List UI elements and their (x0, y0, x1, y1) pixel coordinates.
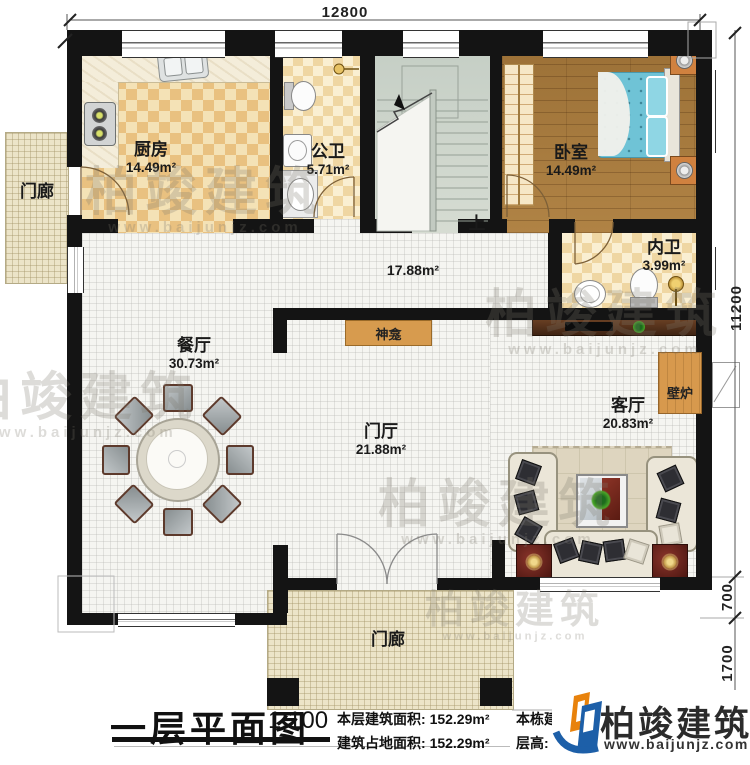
stairs-up-label: 上 (469, 214, 486, 234)
brand-website: www.baijunjz.com (604, 736, 749, 752)
wall (270, 56, 283, 219)
wall (548, 233, 562, 308)
room-label-living: 客厅 20.83m² (603, 396, 653, 431)
wall (67, 293, 82, 613)
shower-sprayer-icon (668, 276, 684, 292)
wall (660, 577, 712, 590)
bath-sink-basin (287, 178, 314, 211)
shrine: 神龛 (345, 320, 432, 346)
window (67, 247, 84, 293)
porch-left-floor (5, 132, 69, 284)
bath-sink-counter (282, 170, 318, 218)
dining-chair (102, 445, 130, 475)
wall (273, 320, 287, 353)
dim-1700: 1700 (719, 631, 735, 695)
room-label-dining: 餐厅 30.73m² (169, 336, 219, 371)
wall (696, 30, 712, 577)
room-label-hall-area: 17.88m² (387, 262, 439, 278)
stat-footprint: 建筑占地面积: 152.29m² (337, 733, 490, 753)
coffee-table (576, 474, 628, 528)
wall (490, 30, 502, 219)
inner-bath-sink-inner (580, 285, 600, 303)
shrine-label: 神龛 (375, 324, 401, 343)
dining-chair (163, 384, 193, 412)
plant (591, 490, 611, 510)
fireplace: 壁炉 (658, 352, 702, 414)
fireplace-niche (712, 362, 740, 408)
room-label-inner-bath: 内卫 3.99m² (643, 238, 686, 273)
side-table-left (516, 544, 552, 580)
burner-2 (92, 126, 107, 141)
toilet-public-bowl (291, 81, 316, 111)
brand-logo: 柏竣建筑 www.baijunjz.com (552, 690, 750, 762)
dining-chair (226, 445, 254, 475)
porch-bottom-floor (267, 590, 514, 710)
nightstand-bottom (670, 156, 699, 185)
side-table-right (652, 544, 688, 580)
toilet-inner-base (630, 297, 658, 308)
scale-label: 1:100 (268, 707, 328, 735)
wall (288, 578, 337, 590)
room-label-foyer: 门厅 21.88m² (356, 422, 406, 457)
sofa-pillow (515, 459, 542, 486)
wall (373, 219, 412, 233)
sofa-pillow (514, 516, 543, 545)
window (543, 30, 648, 58)
pillow-top (646, 76, 668, 117)
window (275, 30, 342, 58)
stat-floor-area: 本层建筑面积: 152.29m² (337, 709, 490, 729)
window (122, 30, 225, 58)
dim-overall-depth: 11200 (728, 276, 744, 340)
bedroom-corridor-floor (502, 233, 548, 308)
stove (84, 102, 116, 146)
dining-table-center (168, 450, 186, 468)
burner-1 (92, 108, 107, 123)
floor-plan: 神龛 壁炉 (0, 0, 750, 765)
room-label-porch-bottom: 门廊 (371, 630, 405, 650)
wardrobe (504, 64, 534, 206)
sofa-bottom (544, 530, 658, 582)
nightstand-lamp (676, 162, 693, 179)
sink-basin-left (163, 56, 183, 77)
gold-ornament (664, 556, 677, 569)
window (118, 613, 235, 627)
pillow-bottom (646, 116, 668, 157)
dining-chair (163, 508, 193, 536)
sofa-pillow-light (623, 538, 649, 564)
title-underline (112, 737, 330, 742)
wall (67, 30, 82, 167)
wall (67, 219, 118, 233)
sofa-pillow (656, 498, 682, 524)
porch-column (480, 678, 512, 706)
wall (67, 613, 118, 625)
inner-bath-sink (574, 280, 606, 308)
sofa-pillow (603, 539, 627, 563)
wall (273, 545, 288, 613)
wall (492, 540, 505, 577)
sofa-pillow (578, 540, 603, 565)
tv (565, 322, 613, 331)
wall (549, 219, 575, 233)
dim-700: 700 (719, 565, 735, 629)
wall (233, 219, 314, 233)
sofa-pillow (553, 537, 580, 564)
fireplace-label: 壁炉 (659, 383, 701, 402)
room-label-public-bath: 公卫 5.71m² (307, 142, 350, 177)
tv-cabinet (532, 318, 700, 336)
wardrobe-rail (518, 65, 520, 205)
washer-drum (288, 140, 307, 161)
wall (492, 577, 540, 590)
wall (613, 219, 698, 233)
wall (490, 219, 507, 233)
window (403, 30, 459, 58)
room-label-porch-left: 门廊 (20, 182, 54, 202)
room-label-bedroom: 卧室 14.49m² (546, 143, 596, 178)
room-label-kitchen: 厨房 14.49m² (126, 140, 176, 175)
window (540, 577, 660, 592)
plant-small (633, 321, 645, 333)
gold-ornament (528, 556, 541, 569)
wall (360, 30, 375, 233)
sofa-pillow (514, 490, 540, 516)
sofa-pillow-light (658, 522, 682, 546)
sofa-pillow (657, 465, 685, 493)
wall (273, 308, 698, 320)
staircase-area (375, 56, 490, 233)
dim-overall-width: 12800 (290, 4, 400, 21)
wall (235, 613, 287, 625)
wall (225, 30, 275, 56)
